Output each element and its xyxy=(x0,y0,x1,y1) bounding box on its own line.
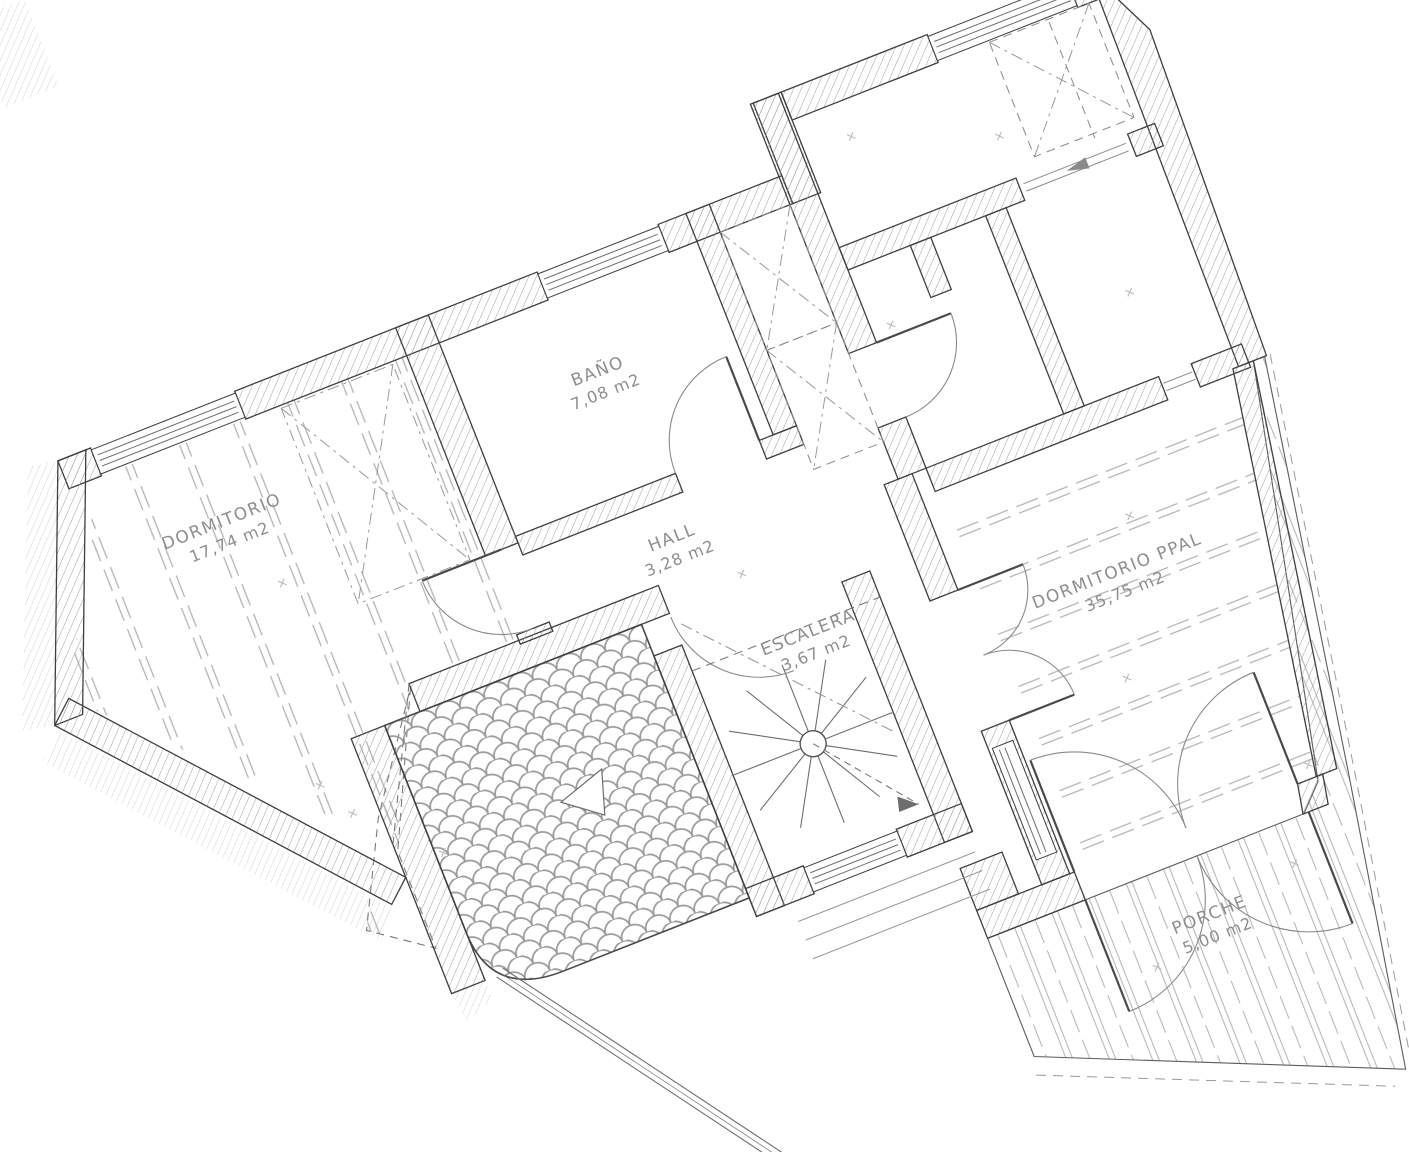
door-bano xyxy=(643,357,760,474)
wing-wall-stub xyxy=(910,237,951,297)
window xyxy=(538,226,668,298)
sliding-door-arrow-icon xyxy=(1065,157,1090,176)
plan-rotated-group: DORMITORIO 17,74 m2 BAÑO 7,08 m2 HALL 3,… xyxy=(0,0,1409,1152)
window xyxy=(804,831,907,892)
x-mark: × xyxy=(734,565,750,583)
window xyxy=(928,0,1077,61)
bano-east-wall xyxy=(686,204,796,435)
wing-divider-wall xyxy=(986,208,1085,414)
x-mark: × xyxy=(1122,284,1138,302)
x-mark: × xyxy=(992,128,1008,146)
north-wall-right-block xyxy=(781,35,938,120)
x-mark: × xyxy=(883,317,899,335)
stair-direction-arrow-icon xyxy=(894,790,919,812)
east-wall xyxy=(1084,0,1277,367)
north-wall-segment xyxy=(658,176,793,253)
wing-west-wall xyxy=(878,417,926,479)
floor-plan-canvas: DORMITORIO 17,74 m2 BAÑO 7,08 m2 HALL 3,… xyxy=(0,0,1409,1152)
wing-west-wall xyxy=(750,93,876,353)
floor-plan-page: DORMITORIO 17,74 m2 BAÑO 7,08 m2 HALL 3,… xyxy=(0,0,1409,1152)
x-mark: × xyxy=(844,128,860,146)
upper-room-dashed-line xyxy=(1049,22,1095,138)
